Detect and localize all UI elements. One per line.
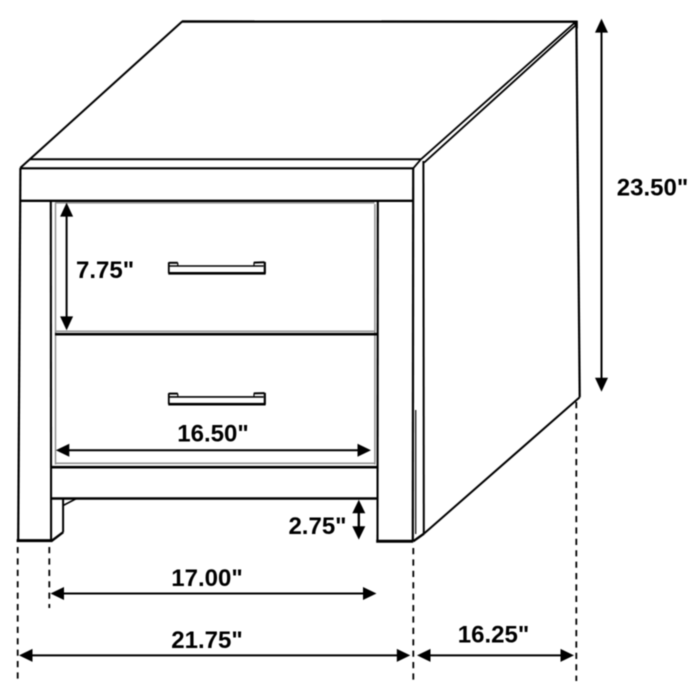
- svg-text:16.25": 16.25": [458, 622, 529, 649]
- svg-text:7.75": 7.75": [76, 257, 134, 284]
- svg-text:21.75": 21.75": [171, 627, 242, 654]
- svg-text:16.50": 16.50": [177, 420, 248, 447]
- svg-text:23.50": 23.50": [617, 175, 688, 202]
- svg-text:17.00": 17.00": [171, 565, 242, 592]
- svg-text:2.75": 2.75": [288, 513, 346, 540]
